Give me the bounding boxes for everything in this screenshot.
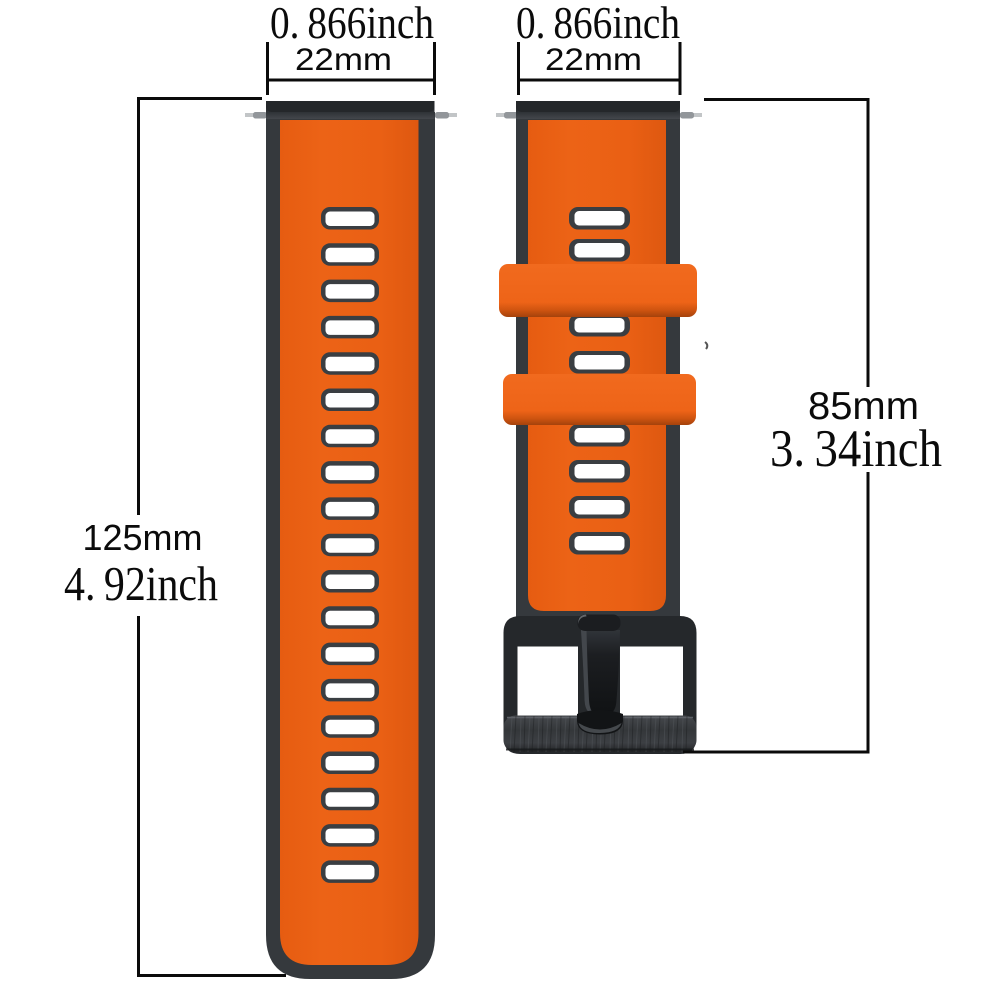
svg-text:4. 92inch: 4. 92inch (64, 556, 218, 611)
svg-text:22mm: 22mm (545, 41, 642, 77)
svg-text:3. 34inch: 3. 34inch (770, 420, 942, 478)
svg-text:22mm: 22mm (295, 41, 392, 77)
svg-text:125mm: 125mm (82, 517, 202, 558)
